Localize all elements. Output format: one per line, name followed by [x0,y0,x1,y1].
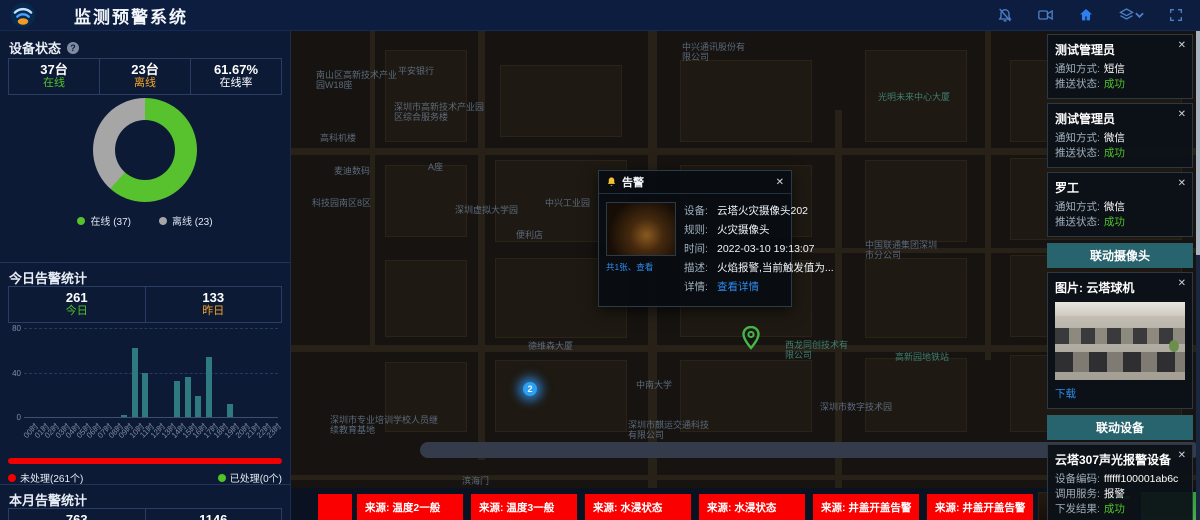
card-row-value: 成功 [1104,147,1125,159]
today-alarms-bar-chart: 0408000时01时02时03时04时05时06时07时08时09时10时11… [8,316,282,452]
map-place-label: 滨海门 [462,476,489,486]
stat-value: 763 [9,512,145,520]
map-place-label: 西龙同创技术有限公司 [785,340,853,360]
card-row: 推送状态:成功 [1055,215,1185,230]
card-row-value: 微信 [1104,201,1125,213]
map-block [865,258,967,338]
notification-card: 云塔307声光报警设备✕设备编码:ffffff100001ab6c调用服务:报警… [1047,444,1193,520]
legend-dot-icon [77,217,85,225]
map-place-label: 科技园南区8区 [312,198,371,208]
close-icon[interactable]: ✕ [1178,278,1186,289]
divider [0,262,290,263]
alert-popup-header: 告警 ✕ [599,171,791,194]
alert-detail-label: 时间: [684,240,717,259]
alert-popup: 告警 ✕ 共1张、查看 设备:云塔火灾摄像头202规则:火灾摄像头时间:2022… [598,170,792,307]
device-status-donut-chart [93,98,197,202]
scrollbar-thumb[interactable] [1196,30,1200,255]
camera-card: 图片: 云塔球机 ✕ 下载 [1047,272,1193,409]
alert-detail-value: 云塔火灾摄像头202 [717,202,808,221]
map-block [680,60,812,142]
legend-label: 离线 (23) [172,213,213,228]
card-row-label: 下发结果: [1055,503,1100,515]
month-alarms-header: 本月告警统计 [9,490,281,509]
close-icon[interactable]: ✕ [1178,450,1186,461]
stat-value: 37台 [9,62,99,77]
card-row-label: 推送状态: [1055,147,1100,159]
card-row-label: 推送状态: [1055,216,1100,228]
notification-card: 测试管理员✕通知方式:短信推送状态:成功 [1047,34,1193,99]
scrollbar[interactable] [1196,30,1200,520]
device-status-header: 设备状态 ? [9,38,281,57]
stat-value: 133 [146,290,282,305]
stat-cell: 23台离线 [99,59,190,94]
bar [132,348,138,417]
legend-label: 在线 (37) [90,213,131,228]
alert-popup-body: 共1张、查看 设备:云塔火灾摄像头202规则:火灾摄像头时间:2022-03-1… [599,194,791,306]
grid-line [24,373,278,374]
alert-source-card[interactable]: 来源: 水浸状态 [585,494,691,520]
bell-muted-icon[interactable] [997,7,1013,23]
map-place-label: 深圳虚拟大学园 [455,205,518,215]
alert-detail-label: 设备: [684,202,717,221]
map-place-label: 高新园地铁站 [895,352,949,362]
y-axis-label: 0 [8,413,21,422]
alert-detail-value: 火灾摄像头 [717,221,770,240]
divider [0,484,290,485]
stat-cell: 37台在线 [9,59,99,94]
page-title: 监测预警系统 [74,3,188,28]
info-icon[interactable]: ? [67,42,79,54]
stat-cell: 1146 [145,509,282,520]
card-row-value: 短信 [1104,63,1125,75]
card-row: 通知方式:短信 [1055,62,1185,77]
map-place-label: 深圳市麒运交通科技有限公司 [628,420,712,440]
map-place-label: A座 [428,162,443,172]
map-place-label: 高科机楼 [320,133,356,143]
map-block [385,260,467,337]
close-icon[interactable]: ✕ [1178,109,1186,120]
map-block [385,165,467,237]
map-road [985,30,991,360]
notification-card: 罗工✕通知方式:微信推送状态:成功 [1047,172,1193,237]
card-row-value: 报警 [1104,488,1125,500]
map-marker-cluster[interactable]: 2 [523,382,537,396]
card-row-label: 设备编码: [1055,473,1100,485]
device-status-stats: 37台在线23台离线61.67%在线率 [8,58,282,95]
stat-value: 61.67% [191,62,281,77]
map-place-label: 中兴通讯股份有限公司 [682,42,748,62]
card-row: 下发结果:成功 [1055,502,1185,517]
y-axis-label: 40 [8,369,21,378]
map-block [495,360,627,432]
map-place-label: 便利店 [516,230,543,240]
card-row-value: ffffff100001ab6c [1104,473,1178,485]
card-row-value: 微信 [1104,132,1125,144]
month-alarms-stats: 7631146 [8,508,282,520]
video-camera-icon[interactable] [1037,7,1054,23]
bar [121,415,127,417]
red-dot-icon [8,474,16,482]
close-icon[interactable]: ✕ [776,177,784,188]
stat-label: 在线 [9,77,99,90]
map-block [385,50,467,142]
stat-label: 在线率 [191,77,281,90]
alert-card-partial[interactable] [318,494,352,520]
app-root: 监测预警系统 [0,0,1200,520]
alert-source-card[interactable]: 来源: 温度3一般 [471,494,577,520]
legend-item: 离线 (23) [159,213,213,228]
card-title: 测试管理员 [1055,108,1185,131]
card-row-label: 通知方式: [1055,201,1100,213]
left-panel: 设备状态 ? 37台在线23台离线61.67%在线率 在线 (37)离线 (23… [0,30,291,520]
card-row-value: 成功 [1104,216,1125,228]
map-place-label: 光明未来中心大厦 [878,92,950,102]
card-title: 测试管理员 [1055,39,1185,62]
card-row: 通知方式:微信 [1055,131,1185,146]
bar [227,404,233,417]
card-row-label: 推送状态: [1055,78,1100,90]
linked-cameras-header: 联动摄像头 [1047,243,1193,268]
layers-icon[interactable] [1118,7,1144,23]
card-title: 罗工 [1055,177,1185,200]
bar [206,357,212,417]
map-road [835,110,842,488]
download-link[interactable]: 下载 [1055,386,1076,401]
notification-card: 测试管理员✕通知方式:微信推送状态:成功 [1047,103,1193,168]
alert-snapshot-thumbnail[interactable] [606,202,676,256]
green-dot-icon [218,474,226,482]
card-row: 通知方式:微信 [1055,200,1185,215]
card-row: 推送状态:成功 [1055,146,1185,161]
map-place-label: 中南大学 [636,380,672,390]
alert-source-card[interactable]: 来源: 井盖开盖告警 [927,494,1033,520]
alert-detail-value: 2022-03-10 19:13:07 [717,240,815,259]
right-panel: 测试管理员✕通知方式:短信推送状态:成功测试管理员✕通知方式:微信推送状态:成功… [1044,30,1196,520]
alert-detail-label: 详情: [684,278,717,297]
home-icon[interactable] [1078,7,1094,23]
app-logo-icon [10,2,36,28]
alert-detail-row: 规则:火灾摄像头 [684,221,834,240]
alert-detail-row: 设备:云塔火灾摄像头202 [684,202,834,221]
view-details-link[interactable]: 查看详情 [717,278,759,297]
legend-item: 在线 (37) [77,213,131,228]
alert-detail-row: 时间:2022-03-10 19:13:07 [684,240,834,259]
card-row-label: 通知方式: [1055,63,1100,75]
progress-legend: 未处理(261个) 已处理(0个) [8,470,282,485]
card-row-label: 通知方式: [1055,132,1100,144]
map-place-label: 中兴工业园 [545,198,590,208]
close-icon[interactable]: ✕ [1178,178,1186,189]
fullscreen-icon[interactable] [1168,7,1184,23]
today-alarms-header: 今日告警统计 [9,268,281,287]
camera-card-title: 图片: 云塔球机 [1055,277,1185,300]
alert-source-card[interactable]: 来源: 温度2一般 [357,494,463,520]
map-place-label: 深圳市数字技术园 [820,402,892,412]
processed-legend-item: 已处理(0个) [218,470,282,485]
alert-detail-row: 描述:火焰报警,当前触发值为... [684,259,834,278]
map-road [478,30,485,460]
bar [195,396,201,417]
camera-snapshot[interactable] [1055,302,1185,380]
unprocessed-progress-bar [8,458,282,464]
map-place-label: 麦迪数码 [334,166,370,176]
map-block [865,160,967,242]
map-place-label: 南山区高新技术产业园W18座 [316,70,398,90]
y-axis-label: 80 [8,324,21,333]
alert-detail-value: 火焰报警,当前触发值为... [717,259,834,278]
map-pin-icon[interactable] [742,326,760,355]
donut-legend: 在线 (37)离线 (23) [0,213,290,228]
topbar: 监测预警系统 [0,0,1200,31]
map-place-label: 深圳市专业培训学校人员继续教育基地 [330,415,442,435]
stat-label: 离线 [100,77,190,90]
legend-dot-icon [159,217,167,225]
topbar-actions [997,7,1184,23]
bell-icon [606,176,617,188]
alert-detail-row: 详情:查看详情 [684,278,834,297]
stat-cell: 61.67%在线率 [190,59,281,94]
linked-devices-header: 联动设备 [1047,415,1193,440]
alert-detail-label: 规则: [684,221,717,240]
stat-cell: 763 [9,509,145,520]
stat-value: 1146 [146,512,282,520]
bar [142,373,148,418]
card-row: 调用服务:报警 [1055,487,1185,502]
stat-value: 23台 [100,62,190,77]
card-row-label: 调用服务: [1055,488,1100,500]
card-row: 设备编码:ffffff100001ab6c [1055,472,1185,487]
card-title: 云塔307声光报警设备 [1055,449,1185,472]
grid-line [24,328,278,329]
map-place-label: 中国联通集团深圳市分公司 [865,240,945,260]
close-icon[interactable]: ✕ [1178,40,1186,51]
bar [174,381,180,417]
map-block [865,358,967,432]
thumbnail-links[interactable]: 共1张、查看 [606,261,676,273]
card-row-value: 成功 [1104,78,1125,90]
map-place-label: 德维森大厦 [528,341,573,351]
card-row: 推送状态:成功 [1055,77,1185,92]
card-row-value: 成功 [1104,503,1125,515]
map-block [500,65,622,137]
stat-value: 261 [9,290,145,305]
alert-source-card[interactable]: 来源: 井盖开盖告警 [813,494,919,520]
chevron-down-icon [1135,11,1144,19]
alert-source-card[interactable]: 来源: 水浸状态 [699,494,805,520]
grid-line [24,417,278,418]
alert-detail-label: 描述: [684,259,717,278]
bar [185,377,191,417]
map-place-label: 深圳市高新技术产业园区综合服务楼 [394,102,486,122]
unprocessed-legend-item: 未处理(261个) [8,470,83,485]
map-place-label: 平安银行 [398,66,434,76]
